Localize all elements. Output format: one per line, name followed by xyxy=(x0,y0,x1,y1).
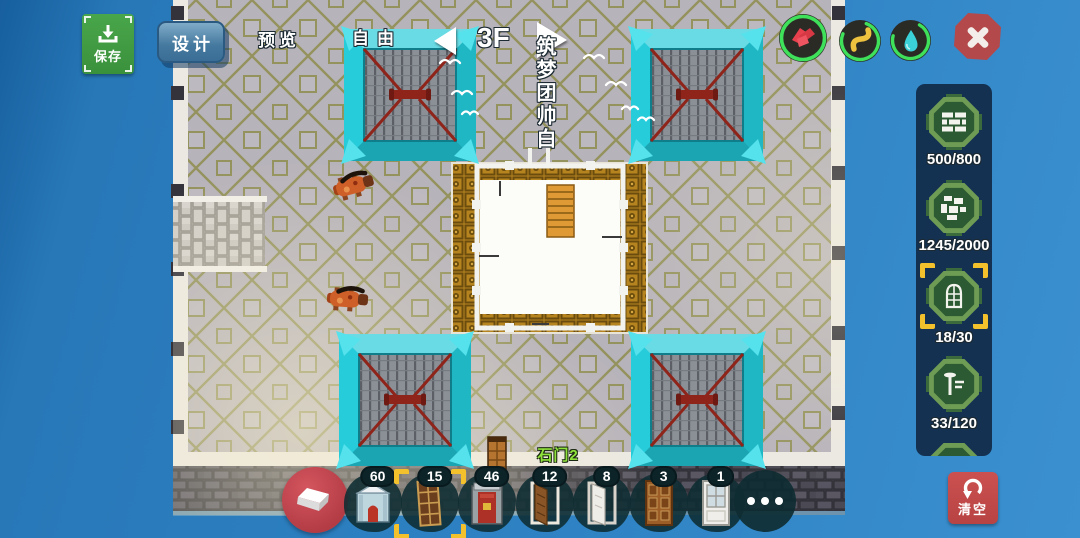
camera-mode-label: 自由 xyxy=(352,24,402,49)
item-count-badge: 12 xyxy=(532,466,568,487)
more-items-button[interactable] xyxy=(734,470,796,532)
brick-wall-icon xyxy=(941,113,967,132)
blue-facade-door-icon xyxy=(354,482,392,524)
selection-brackets xyxy=(920,263,988,329)
hotbar-slot[interactable]: 12 xyxy=(516,474,574,532)
resource-count: 1245/2000 xyxy=(916,237,992,254)
selected-item-name: 石门2 xyxy=(502,444,614,465)
water-drop-icon xyxy=(895,25,927,57)
item-count-badge: 1 xyxy=(707,466,735,487)
resource-furniture[interactable] xyxy=(928,358,980,410)
resource-more[interactable] xyxy=(928,442,980,456)
tab-preview[interactable]: 预览 xyxy=(258,26,300,51)
red-ribbon-icon xyxy=(786,21,820,55)
resource-count: 500/800 xyxy=(916,151,992,168)
team-watermark: 筑梦团帅白 xyxy=(531,36,557,168)
central-hall[interactable] xyxy=(452,148,647,333)
download-icon xyxy=(97,24,119,44)
clear-button[interactable]: 清空 xyxy=(948,472,998,524)
hotbar-slot[interactable]: 3 xyxy=(630,474,688,532)
corner-tick xyxy=(125,16,132,23)
pavilion-roof-top-right xyxy=(628,26,766,164)
resource-sidebar: 500/800 1245/2000 xyxy=(916,84,992,456)
corner-tick xyxy=(84,16,91,23)
item-count-badge: 8 xyxy=(593,466,621,487)
tool-button-terrain[interactable] xyxy=(839,20,881,62)
floor-prev-arrow[interactable] xyxy=(434,27,456,55)
resource-floors[interactable] xyxy=(928,182,980,234)
pavilion-roof-bottom-left xyxy=(336,331,474,469)
hotbar-slot[interactable]: 46 xyxy=(458,474,516,532)
hotbar-slot-selected[interactable]: 15 xyxy=(401,474,459,532)
floor-blocks-icon xyxy=(941,196,967,220)
corner-tick xyxy=(125,65,132,72)
clear-label: 清空 xyxy=(958,499,988,518)
resource-doors-selected[interactable] xyxy=(928,270,980,322)
tool-button-water[interactable] xyxy=(890,20,931,61)
resource-bricks[interactable] xyxy=(928,96,980,148)
pavilion-roof-bottom-right xyxy=(628,331,766,469)
save-label: 保存 xyxy=(94,46,122,65)
selection-brackets xyxy=(394,469,466,538)
floor-level-label: 3F xyxy=(477,22,510,54)
resource-count: 33/120 xyxy=(916,415,992,432)
orange-curve-arrow-icon xyxy=(844,25,876,57)
corner-tick xyxy=(84,65,91,72)
tool-button-appearance[interactable] xyxy=(779,14,827,62)
tab-design[interactable]: 设计 xyxy=(157,21,225,63)
item-count-badge: 60 xyxy=(360,466,396,487)
furniture-icon xyxy=(941,371,967,397)
metal-red-door-icon xyxy=(470,481,504,525)
game-screen: 保存 设计 预览 自由 3F 筑梦团帅白 xyxy=(0,0,1080,538)
reset-arrow-icon xyxy=(961,478,985,500)
hotbar-slot[interactable]: 8 xyxy=(573,474,631,532)
close-icon xyxy=(964,23,992,51)
save-button[interactable]: 保存 xyxy=(82,14,134,74)
item-count-badge: 3 xyxy=(650,466,678,487)
eraser-icon xyxy=(296,486,334,514)
ladder xyxy=(547,185,574,237)
ellipsis-icon xyxy=(747,497,755,505)
eraser-button[interactable] xyxy=(282,467,348,533)
item-count-badge: 46 xyxy=(474,466,510,487)
resource-count: 18/30 xyxy=(916,329,992,346)
